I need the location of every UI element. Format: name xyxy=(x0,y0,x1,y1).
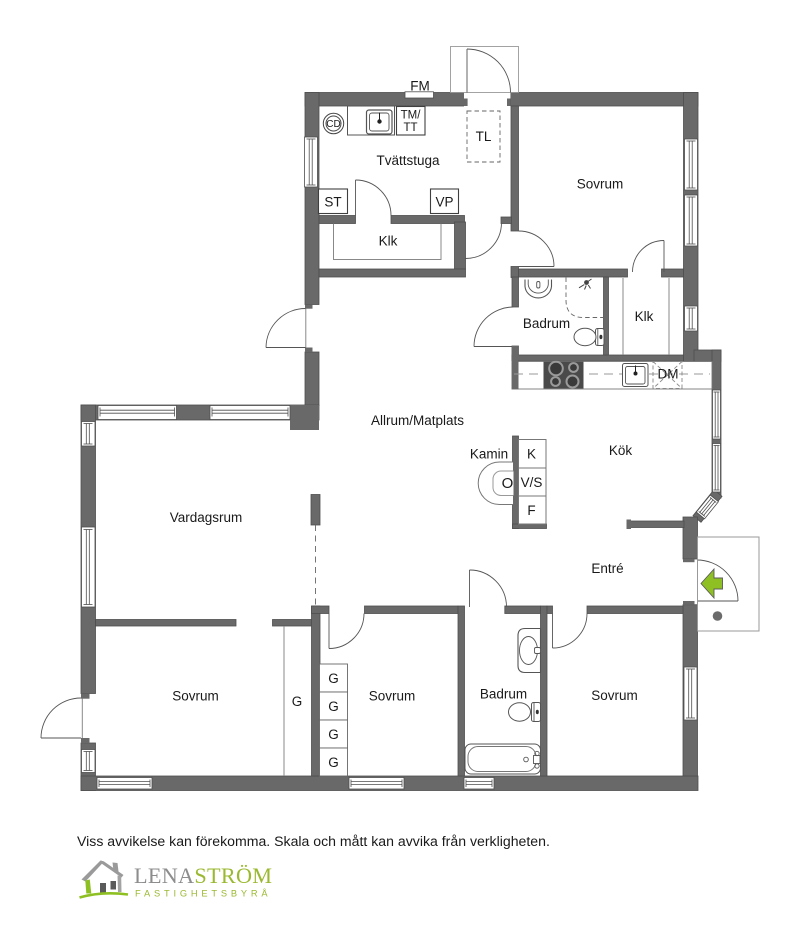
svg-text:FM: FM xyxy=(410,79,430,94)
svg-text:Kök: Kök xyxy=(609,443,633,458)
svg-text:TT: TT xyxy=(403,122,417,134)
svg-text:LENASTRÖM: LENASTRÖM xyxy=(134,863,272,888)
svg-text:Kamin: Kamin xyxy=(470,447,508,462)
svg-text:Sovrum: Sovrum xyxy=(172,689,219,704)
svg-text:O: O xyxy=(502,475,514,492)
svg-text:Tvättstuga: Tvättstuga xyxy=(376,153,440,168)
svg-text:G: G xyxy=(328,671,339,686)
svg-text:Badrum: Badrum xyxy=(480,687,527,702)
svg-text:Klk: Klk xyxy=(379,234,398,249)
svg-text:CD: CD xyxy=(326,119,340,130)
svg-text:V/S: V/S xyxy=(521,475,543,490)
svg-text:Sovrum: Sovrum xyxy=(577,177,624,192)
svg-text:FASTIGHETSBYRÅ: FASTIGHETSBYRÅ xyxy=(135,889,271,899)
svg-text:VP: VP xyxy=(435,195,453,210)
svg-text:G: G xyxy=(328,699,339,714)
svg-text:G: G xyxy=(292,694,303,709)
svg-text:TL: TL xyxy=(476,129,492,144)
svg-text:Viss avvikelse kan förekomma.: Viss avvikelse kan förekomma. Skala och … xyxy=(77,833,550,849)
svg-text:Badrum: Badrum xyxy=(523,316,570,331)
svg-text:Sovrum: Sovrum xyxy=(369,689,416,704)
svg-text:ST: ST xyxy=(324,195,341,210)
svg-text:Vardagsrum: Vardagsrum xyxy=(170,510,243,525)
svg-text:TM/: TM/ xyxy=(401,110,422,122)
svg-text:G: G xyxy=(328,755,339,770)
svg-text:K: K xyxy=(527,447,536,462)
svg-text:G: G xyxy=(328,727,339,742)
svg-text:Klk: Klk xyxy=(635,309,654,324)
svg-text:DM: DM xyxy=(658,367,679,382)
svg-text:Allrum/Matplats: Allrum/Matplats xyxy=(371,413,464,428)
svg-text:Sovrum: Sovrum xyxy=(591,688,638,703)
svg-text:Entré: Entré xyxy=(591,561,623,576)
svg-text:F: F xyxy=(527,503,535,518)
